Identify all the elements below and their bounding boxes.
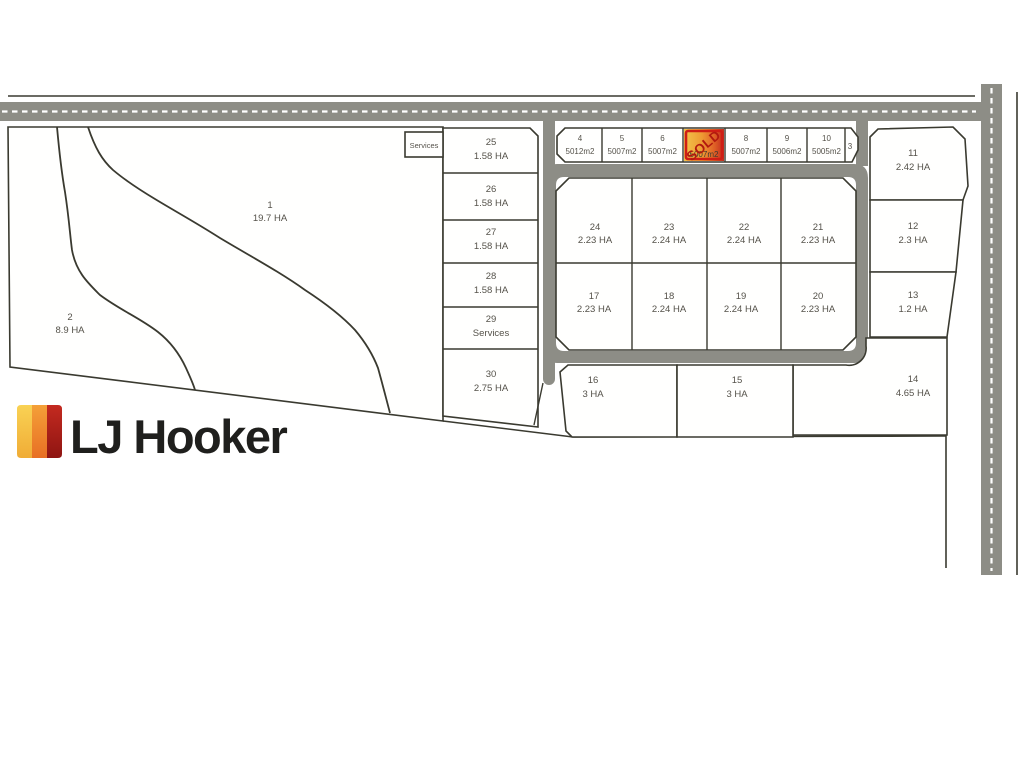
lot-number: 30: [486, 369, 497, 380]
lot-number: 23: [664, 222, 675, 233]
lot-area: 2.24 HA: [652, 235, 687, 246]
west-paddocks: [8, 127, 443, 421]
subdivision-plan: 1 19.7 HA 2 8.9 HA Services 25 1.58 HA 2…: [0, 0, 1024, 768]
lot-number: 19: [736, 291, 747, 302]
lot-area: 1.58 HA: [474, 151, 509, 162]
lot-area: Services: [473, 328, 510, 339]
lot-area: 2.23 HA: [577, 304, 612, 315]
lot-number: 27: [486, 227, 497, 238]
lot-number: 8: [744, 134, 749, 143]
lot-area: 5006m2: [773, 147, 802, 156]
lot-area: 1.58 HA: [474, 285, 509, 296]
lot-area: 2.42 HA: [896, 162, 931, 173]
lot-number: 20: [813, 291, 824, 302]
lot-area: 2.24 HA: [727, 235, 762, 246]
lot-area: 2.23 HA: [801, 235, 836, 246]
road-main-horizontal: [0, 102, 1002, 121]
lot-number: 29: [486, 314, 497, 325]
lot-number: 4: [578, 134, 583, 143]
lot-area: 2.23 HA: [578, 235, 613, 246]
lot-number: 25: [486, 137, 497, 148]
lot-area: 2.3 HA: [898, 235, 928, 246]
lot-number: 28: [486, 271, 497, 282]
lot-area: 2.24 HA: [724, 304, 759, 315]
lot-area: 19.7 HA: [253, 213, 288, 224]
lot-area: 4.65 HA: [896, 388, 931, 399]
lot-area: 5007m2: [648, 147, 677, 156]
lot-number: 9: [785, 134, 790, 143]
lot-number: 15: [732, 375, 743, 386]
lot-area: 3 HA: [726, 389, 748, 400]
services-box-label: Services: [410, 141, 439, 150]
lot-number: 18: [664, 291, 675, 302]
lot-area: 5007m2: [732, 147, 761, 156]
lot-17-24-block: [556, 178, 856, 350]
bottom-lots-15-16: [534, 365, 793, 437]
lj-hooker-logo: LJ Hooker: [17, 405, 288, 463]
lot-number: 6: [660, 134, 665, 143]
lot-area: 5007m2: [608, 147, 637, 156]
lot-number: 3: [848, 142, 853, 151]
lot-number: 17: [589, 291, 600, 302]
lot-area: 2.23 HA: [801, 304, 836, 315]
lot-area: 1.2 HA: [898, 304, 928, 315]
lot-area: 2.75 HA: [474, 383, 509, 394]
lot-number: 11: [908, 148, 918, 159]
lot-area: 1.58 HA: [474, 241, 509, 252]
logo-stripe-orange: [32, 405, 47, 458]
lot-region-1-2: [8, 127, 443, 421]
lot-area: 5012m2: [566, 147, 595, 156]
logo-wordmark: LJ Hooker: [70, 410, 288, 463]
middle-block-lots: [556, 178, 856, 350]
logo-stripe-yellow: [17, 405, 32, 458]
lot-number: 13: [908, 290, 919, 301]
logo-stripe-red: [47, 405, 62, 458]
plan-canvas: 1 19.7 HA 2 8.9 HA Services 25 1.58 HA 2…: [0, 0, 1024, 768]
lot-number: 10: [822, 134, 831, 143]
lot-area: 3 HA: [582, 389, 604, 400]
lot-area: 2.24 HA: [652, 304, 687, 315]
logo-stripes-icon: [17, 405, 62, 458]
lot-area: 8.9 HA: [55, 325, 85, 336]
lot-number: 14: [908, 374, 919, 385]
lot-number: 2: [67, 312, 72, 323]
lot-number: 26: [486, 184, 497, 195]
lot-number: 16: [588, 375, 599, 386]
lot-area: 5005m2: [812, 147, 841, 156]
lot-number: 5: [620, 134, 625, 143]
lot-number: 21: [813, 222, 824, 233]
lot-number: 1: [267, 200, 272, 211]
road-stub-west: [543, 121, 555, 385]
lot-number: 22: [739, 222, 750, 233]
lot-number: 24: [590, 222, 601, 233]
lot-16: [560, 365, 677, 437]
lot-area: 1.58 HA: [474, 198, 509, 209]
lot-number: 12: [908, 221, 919, 232]
